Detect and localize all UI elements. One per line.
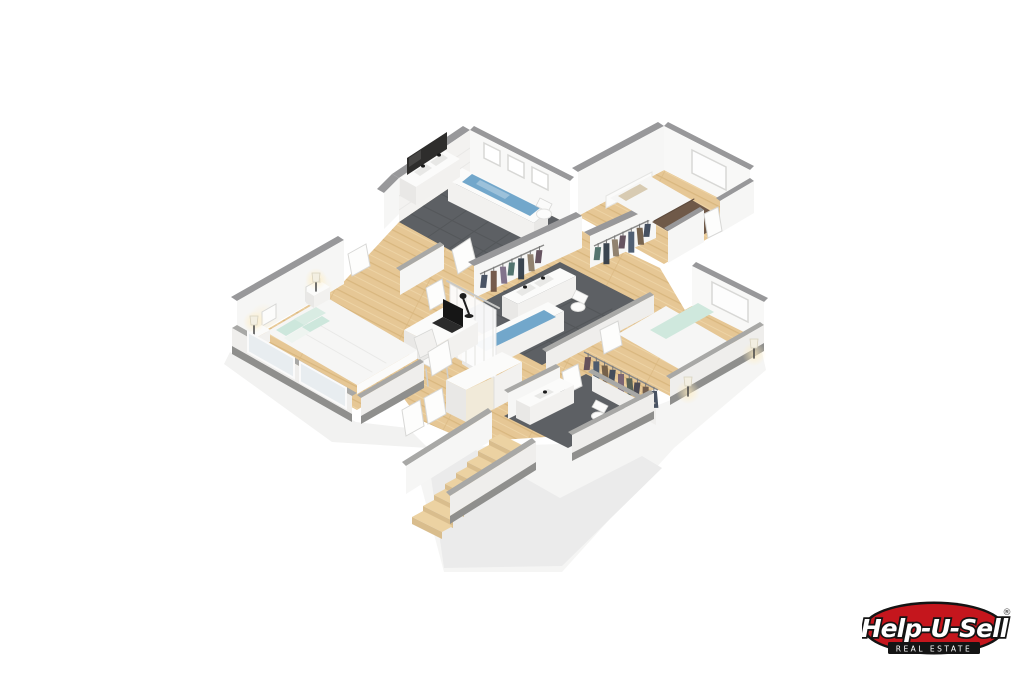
- faucet: [437, 153, 441, 156]
- help-u-sell-logo: Help-U-Sell REAL ESTATE ®: [862, 600, 1014, 662]
- desk-lamp-base: [465, 314, 474, 318]
- logo-name-text: Help-U-Sell: [862, 614, 1009, 643]
- lamp-shade: [312, 273, 320, 282]
- lamp-shade: [250, 316, 258, 325]
- lamp-shade: [750, 339, 758, 348]
- floor-plan-3d-rendering: [0, 0, 1024, 683]
- hanging-clothes: [603, 243, 609, 264]
- faucet: [421, 164, 425, 167]
- faucet: [523, 285, 527, 288]
- hb-toilet-bowl: [571, 303, 585, 312]
- floor-plan-page: Help-U-Sell REAL ESTATE ®: [0, 0, 1024, 683]
- toilet-bowl: [537, 209, 552, 219]
- lamp-shade: [684, 377, 692, 386]
- registered-mark: ®: [1003, 608, 1012, 618]
- closet-door: [402, 400, 424, 436]
- hanging-clothes: [491, 271, 497, 292]
- hanging-clothes: [518, 258, 524, 279]
- faucet: [541, 276, 545, 279]
- logo-tagline-text: REAL ESTATE: [896, 645, 973, 654]
- faucet: [543, 390, 547, 393]
- hanging-clothes: [628, 232, 634, 253]
